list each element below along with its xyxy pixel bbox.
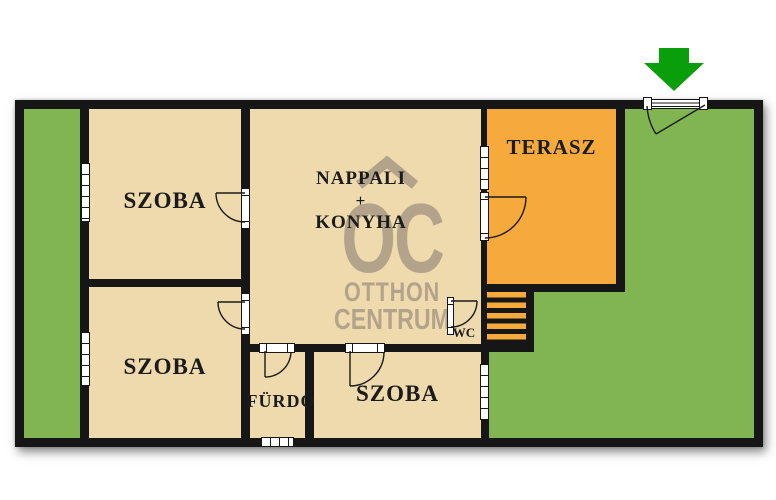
- floorplan-canvas: OC OTTHON CENTRUM SZOBA SZOBA SZOBA NAPP…: [0, 0, 776, 500]
- entrance-arrow-icon: [0, 0, 776, 500]
